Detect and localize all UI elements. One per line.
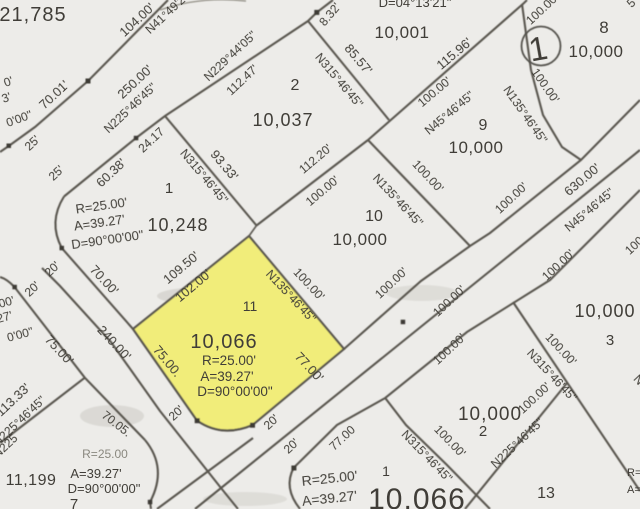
svg-text:3: 3 (606, 332, 614, 349)
svg-text:A=39.27': A=39.27' (70, 466, 121, 481)
svg-text:10,000: 10,000 (449, 138, 504, 157)
svg-text:10,248: 10,248 (147, 215, 208, 235)
svg-text:10,000: 10,000 (458, 404, 522, 425)
svg-text:A=39.: A=39. (627, 484, 640, 496)
svg-text:2: 2 (291, 77, 300, 94)
svg-text:R=25.00': R=25.00' (202, 353, 256, 368)
svg-text:13: 13 (537, 485, 555, 502)
svg-text:21,785: 21,785 (0, 4, 67, 26)
svg-text:10,066: 10,066 (368, 483, 466, 509)
svg-text:10,000: 10,000 (574, 301, 635, 321)
svg-text:8: 8 (599, 18, 608, 37)
svg-text:A=39.27': A=39.27' (200, 369, 253, 384)
svg-text:1: 1 (382, 463, 390, 479)
svg-text:R=25.: R=25. (627, 467, 640, 479)
svg-text:10: 10 (365, 208, 383, 225)
svg-text:9: 9 (479, 117, 488, 134)
svg-text:2: 2 (479, 423, 487, 440)
svg-text:10,037: 10,037 (252, 110, 313, 130)
svg-text:R=25.00: R=25.00 (82, 447, 128, 461)
svg-text:10,000: 10,000 (569, 42, 624, 61)
svg-text:D=90°00'00": D=90°00'00" (68, 481, 141, 496)
svg-text:D=90°00'00": D=90°00'00" (197, 384, 273, 399)
svg-text:7: 7 (70, 496, 78, 509)
svg-text:11,199: 11,199 (6, 472, 57, 489)
svg-text:D=04°13'21": D=04°13'21" (379, 0, 452, 10)
svg-text:10,000: 10,000 (333, 230, 388, 249)
svg-text:10,066: 10,066 (190, 331, 257, 353)
svg-text:1: 1 (165, 180, 173, 197)
svg-text:11: 11 (243, 298, 258, 314)
svg-text:10,001: 10,001 (375, 23, 430, 42)
